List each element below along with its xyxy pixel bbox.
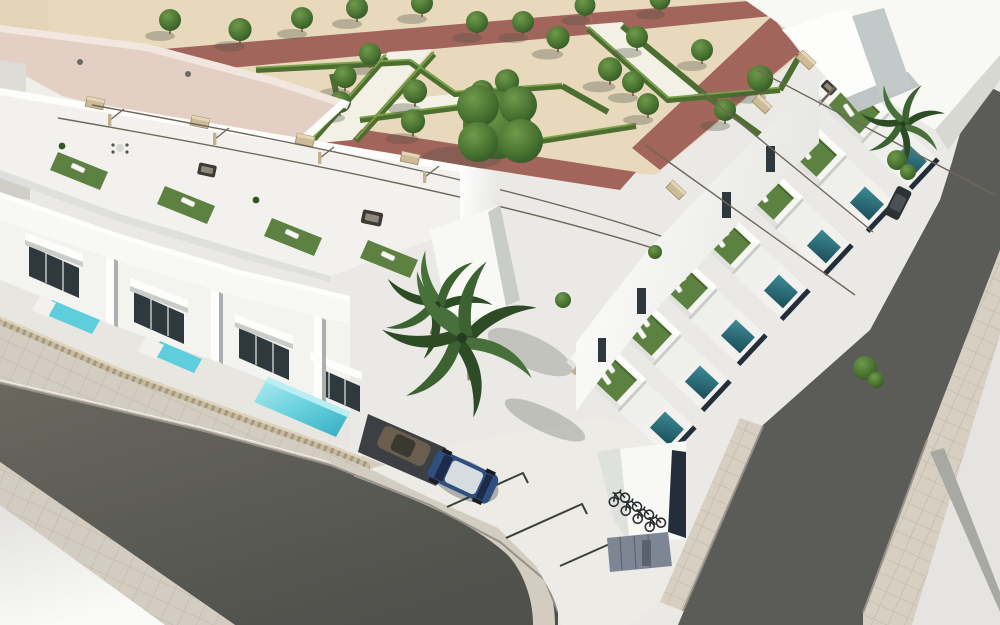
pergola-post bbox=[423, 171, 426, 183]
render-canvas: Aerial 3D architectural rendering: moder… bbox=[0, 0, 1000, 625]
potted-plant bbox=[253, 197, 260, 204]
bush bbox=[868, 372, 884, 388]
potted-plant bbox=[59, 143, 66, 150]
storage-units bbox=[607, 532, 672, 572]
terrace-plant bbox=[648, 245, 662, 259]
roof-vent bbox=[77, 59, 83, 65]
pergola-post bbox=[318, 152, 321, 164]
roof-vent bbox=[185, 71, 191, 77]
facade-window bbox=[637, 288, 646, 314]
facade-window bbox=[598, 338, 606, 362]
bush bbox=[900, 164, 916, 180]
pergola-post bbox=[213, 133, 216, 145]
storage-door bbox=[642, 540, 651, 566]
pergola-post bbox=[108, 114, 111, 126]
render-viewport: Aerial 3D architectural rendering: moder… bbox=[0, 0, 1000, 625]
terrace-plant bbox=[555, 292, 571, 308]
